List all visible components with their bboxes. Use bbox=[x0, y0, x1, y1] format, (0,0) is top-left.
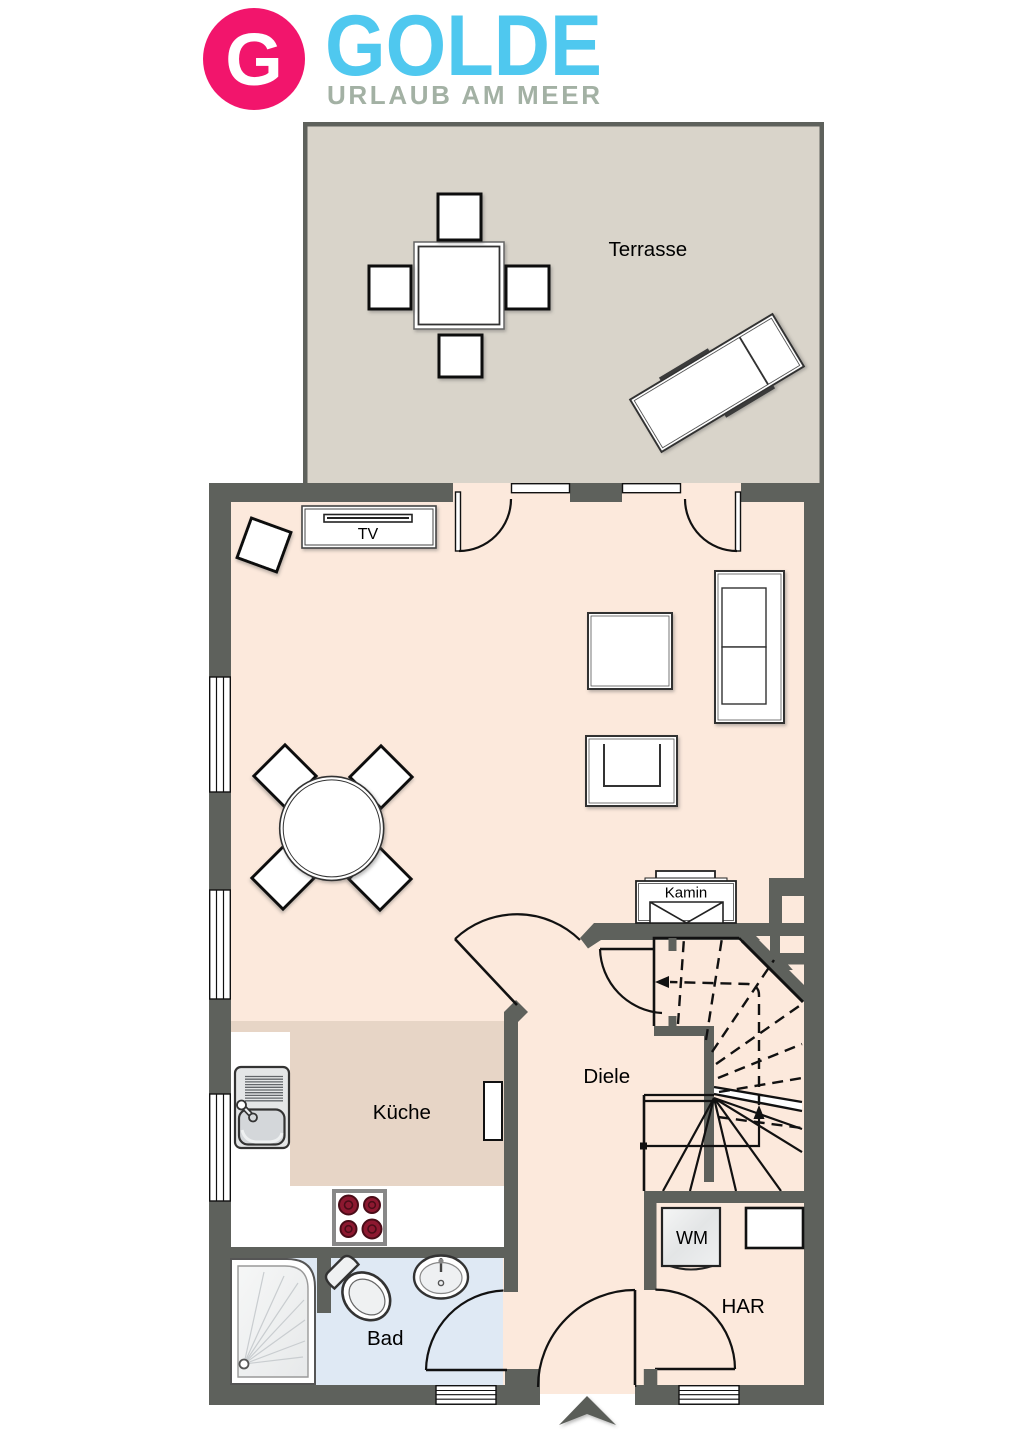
svg-text:Kamin: Kamin bbox=[665, 885, 708, 902]
svg-text:Diele: Diele bbox=[583, 1065, 630, 1088]
svg-text:HAR: HAR bbox=[722, 1295, 765, 1318]
svg-text:Bad: Bad bbox=[367, 1327, 403, 1350]
svg-text:TV: TV bbox=[358, 526, 379, 543]
svg-text:Terrasse: Terrasse bbox=[609, 238, 688, 261]
svg-text:G: G bbox=[225, 18, 283, 101]
svg-text:WM: WM bbox=[676, 1228, 708, 1248]
svg-text:Küche: Küche bbox=[373, 1101, 431, 1124]
